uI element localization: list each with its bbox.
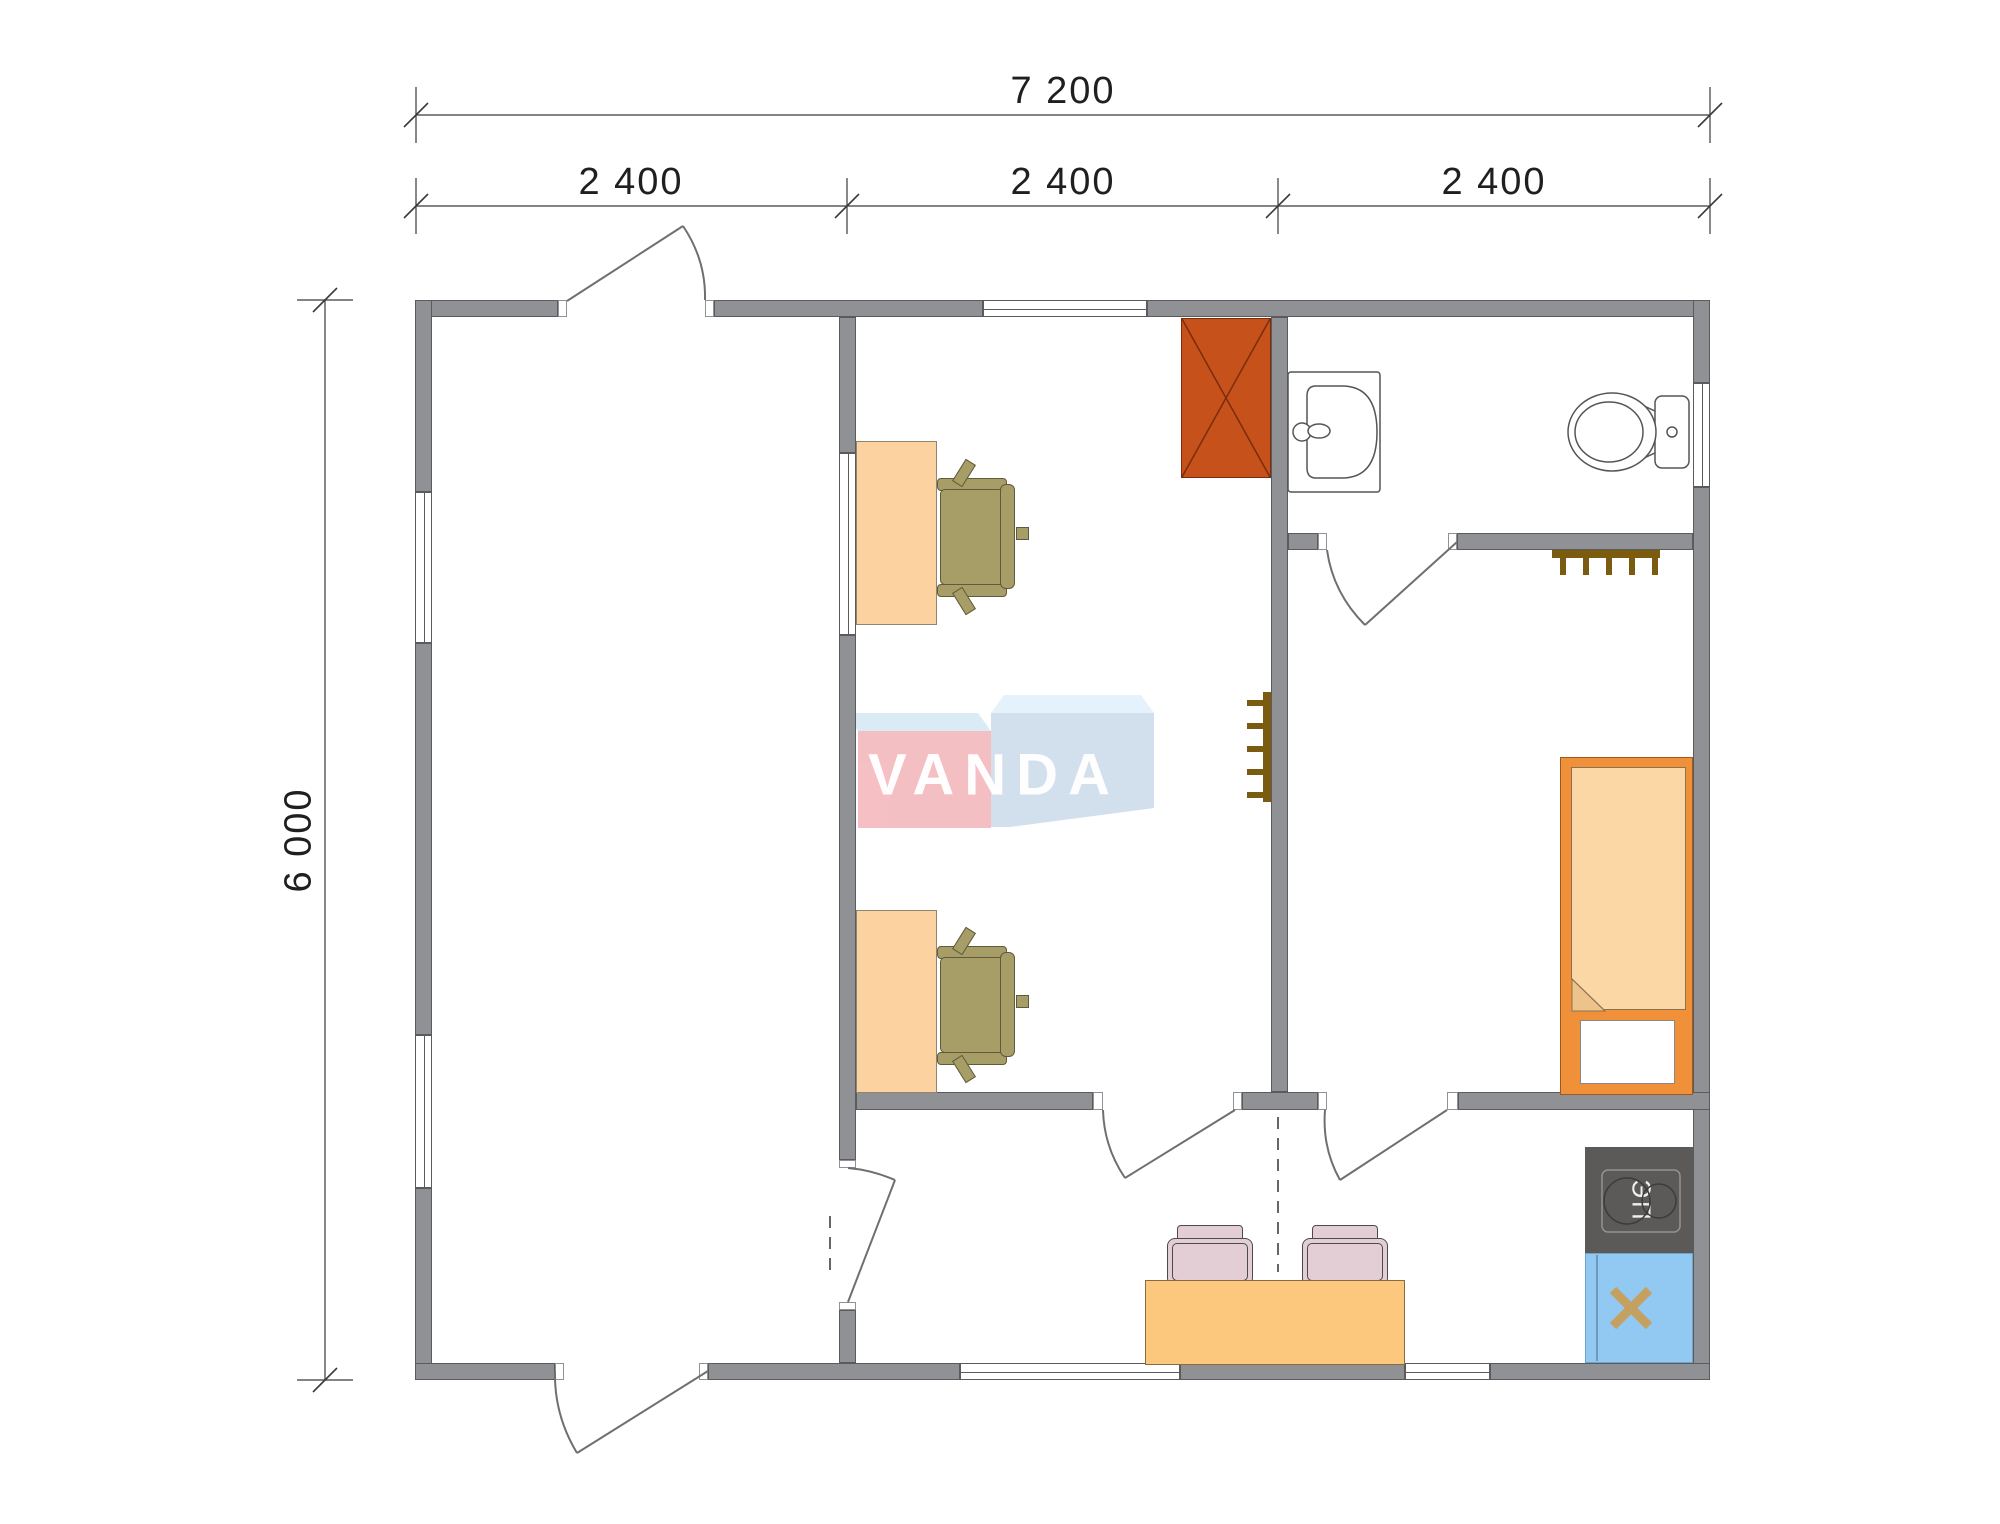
door-jamb	[1448, 533, 1457, 550]
wall-bottom-3	[1180, 1363, 1405, 1380]
door-bathroom	[1327, 542, 1457, 625]
wall-right-2	[1693, 487, 1710, 1380]
window-top	[983, 300, 1147, 317]
floor-plan: VANDA	[0, 0, 2000, 1524]
entrance-door-top	[567, 226, 705, 301]
wall-bottom-2	[708, 1363, 960, 1380]
window-left-lower	[415, 1035, 432, 1188]
wall-bottom-1	[415, 1363, 555, 1380]
office-chair-armrest	[937, 584, 1007, 597]
radiator-horizontal	[1552, 550, 1660, 575]
desk-upper	[856, 441, 937, 625]
desk-lower	[856, 910, 937, 1093]
wall-bathroom-a	[1288, 533, 1318, 550]
wall-interior-1b	[839, 635, 856, 1160]
office-chair-leg	[1016, 527, 1029, 540]
wall-right-1	[1693, 300, 1710, 383]
dimension-total-width: 7 200	[1010, 70, 1115, 113]
wall-bathroom-b	[1457, 533, 1693, 550]
bed-mattress	[1571, 767, 1686, 1010]
stove-label: ЭП	[1626, 1179, 1657, 1222]
watermark-text: VANDA	[868, 742, 1120, 809]
wall-tee-bar	[1242, 1092, 1318, 1110]
wall-top-3	[1147, 300, 1710, 317]
office-chair-armrest	[937, 1052, 1007, 1065]
dining-chair-seat	[1167, 1238, 1253, 1286]
window-interior	[839, 453, 856, 635]
office-chair-seat	[940, 957, 1004, 1053]
door-jamb	[1318, 1092, 1327, 1110]
wall-top-2	[714, 300, 983, 317]
wall-hall-left	[856, 1092, 1093, 1110]
radiator-vertical	[1247, 692, 1271, 802]
office-chair-back	[1000, 484, 1015, 589]
dining-chair-seat	[1302, 1238, 1388, 1286]
door-jamb	[1093, 1092, 1103, 1110]
door-hall-to-middle-room	[1103, 1110, 1235, 1178]
door-jamb	[1447, 1092, 1458, 1110]
window-left-upper	[415, 492, 432, 643]
wall-bottom-4	[1490, 1363, 1710, 1380]
door-jamb	[558, 300, 567, 317]
door-jamb	[839, 1302, 856, 1310]
door-jamb	[705, 300, 714, 317]
dining-table	[1145, 1280, 1405, 1365]
window-bottom-left	[960, 1363, 1180, 1380]
wall-left-2	[415, 643, 432, 1035]
door-jamb	[839, 1160, 856, 1168]
dimension-segment-2: 2 400	[1010, 161, 1115, 204]
wall-interior-1a	[839, 317, 856, 453]
window-right	[1693, 383, 1710, 487]
wall-left-1	[415, 300, 432, 492]
door-jamb	[1233, 1092, 1242, 1110]
toilet-icon	[1568, 393, 1689, 471]
dimension-lines	[297, 87, 1722, 1392]
window-bottom-right	[1405, 1363, 1490, 1380]
dimension-segment-3: 2 400	[1441, 161, 1546, 204]
wall-interior-2	[1271, 317, 1288, 1092]
door-left-room	[848, 1168, 895, 1302]
wall-top-1	[415, 300, 558, 317]
door-jamb	[555, 1363, 564, 1380]
washbasin-icon	[1288, 372, 1380, 492]
door-jamb	[699, 1363, 708, 1380]
wall-interior-1c	[839, 1310, 856, 1363]
door-hall-to-right-room	[1325, 1110, 1447, 1180]
door-jamb	[1318, 533, 1327, 550]
bed-pillow	[1580, 1020, 1675, 1084]
kitchen-sink	[1585, 1253, 1693, 1363]
office-chair-back	[1000, 952, 1015, 1057]
wardrobe	[1181, 318, 1271, 478]
entrance-door-bottom	[555, 1371, 708, 1453]
dimension-segment-1: 2 400	[578, 161, 683, 204]
wall-left-3	[415, 1188, 432, 1380]
office-chair-seat	[940, 489, 1004, 585]
office-chair-leg	[1016, 995, 1029, 1008]
dimension-height: 6 000	[278, 787, 321, 892]
